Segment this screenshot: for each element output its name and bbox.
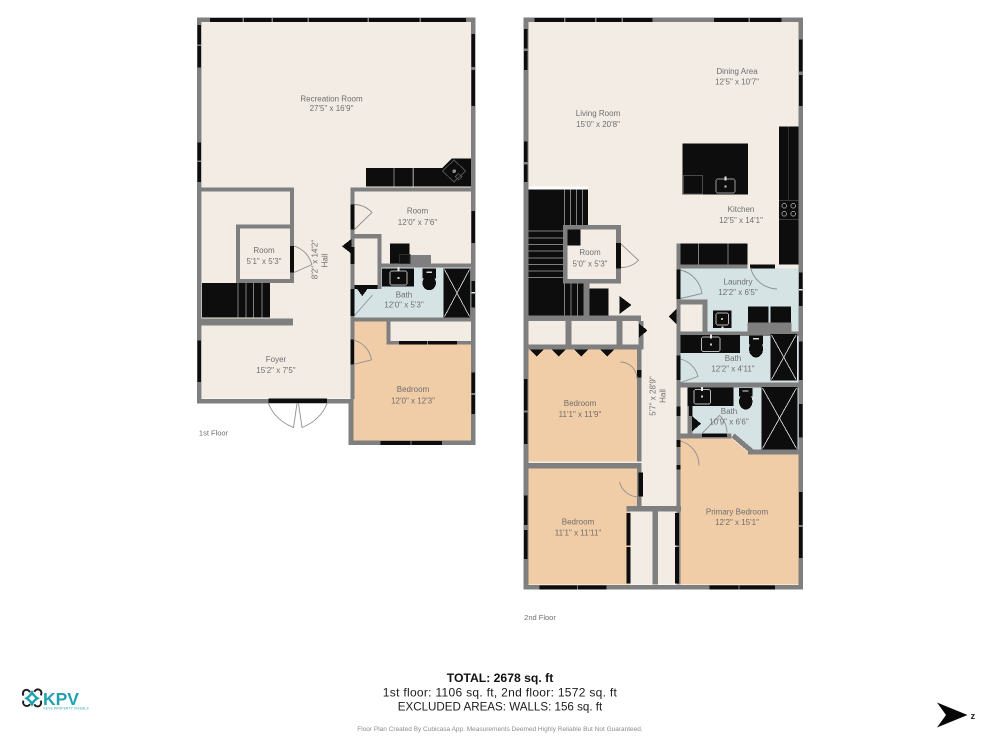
svg-text:Foyer: Foyer: [266, 355, 287, 364]
svg-text:2nd Floor: 2nd Floor: [524, 613, 556, 622]
svg-text:10'9" x 6'6": 10'9" x 6'6": [709, 418, 749, 427]
svg-text:27'5" x 16'9": 27'5" x 16'9": [310, 104, 354, 113]
svg-text:Room: Room: [253, 246, 275, 255]
svg-text:Hall: Hall: [659, 389, 668, 403]
svg-text:Room: Room: [579, 248, 601, 257]
svg-text:15'2" x 7'5": 15'2" x 7'5": [256, 366, 296, 375]
svg-text:Bedroom: Bedroom: [562, 518, 595, 527]
svg-text:1st Floor: 1st Floor: [199, 429, 229, 438]
svg-text:15'0" x 20'8": 15'0" x 20'8": [576, 120, 620, 129]
svg-text:Floor Plan Created By Cubicasa: Floor Plan Created By Cubicasa App. Meas…: [357, 726, 643, 733]
svg-text:1st floor: 1106 sq. ft, 2nd fl: 1st floor: 1106 sq. ft, 2nd floor: 1572 …: [383, 686, 618, 700]
svg-text:11'1" x 11'11": 11'1" x 11'11": [555, 529, 602, 538]
svg-text:Bath: Bath: [721, 407, 737, 416]
svg-text:5'0" x 5'3": 5'0" x 5'3": [573, 260, 608, 269]
svg-text:Bath: Bath: [396, 291, 412, 300]
svg-text:11'1" x 11'9": 11'1" x 11'9": [559, 410, 602, 419]
svg-text:Primary Bedroom: Primary Bedroom: [706, 508, 769, 517]
svg-text:8'2" x 14'2": 8'2" x 14'2": [311, 240, 320, 280]
svg-text:EXCLUDED AREAS: WALLS: 156 sq.: EXCLUDED AREAS: WALLS: 156 sq. ft: [398, 701, 603, 714]
svg-text:Recreation Room: Recreation Room: [300, 95, 363, 104]
svg-text:Bath: Bath: [725, 354, 741, 363]
svg-text:z: z: [971, 711, 976, 722]
svg-text:5'7" x 28'9": 5'7" x 28'9": [649, 376, 658, 416]
svg-text:12'5" x 10'7": 12'5" x 10'7": [715, 78, 759, 87]
svg-text:Kitchen: Kitchen: [728, 205, 755, 214]
svg-text:12'5" x 14'1": 12'5" x 14'1": [719, 216, 763, 225]
svg-text:Hall: Hall: [321, 253, 330, 267]
svg-text:12'0" x 7'6": 12'0" x 7'6": [398, 218, 438, 227]
svg-text:12'0" x 5'3": 12'0" x 5'3": [384, 301, 424, 310]
svg-text:12'0" x 12'3": 12'0" x 12'3": [391, 397, 435, 406]
svg-text:12'2" x 4'11": 12'2" x 4'11": [711, 365, 754, 374]
svg-text:Bedroom: Bedroom: [397, 385, 430, 394]
svg-text:Living Room: Living Room: [576, 109, 621, 118]
svg-text:5'1" x 5'3": 5'1" x 5'3": [247, 257, 282, 266]
svg-text:12'2" x 15'1": 12'2" x 15'1": [715, 518, 759, 527]
svg-text:TOTAL: 2678 sq. ft: TOTAL: 2678 sq. ft: [447, 671, 554, 685]
svg-text:Laundry: Laundry: [724, 278, 753, 287]
svg-text:12'2" x 6'5": 12'2" x 6'5": [718, 288, 758, 297]
svg-text:Dining Area: Dining Area: [716, 67, 758, 76]
svg-text:KEYS PROPERTY VISUALS: KEYS PROPERTY VISUALS: [44, 707, 89, 711]
svg-text:Bedroom: Bedroom: [564, 399, 597, 408]
svg-text:Room: Room: [407, 207, 429, 216]
